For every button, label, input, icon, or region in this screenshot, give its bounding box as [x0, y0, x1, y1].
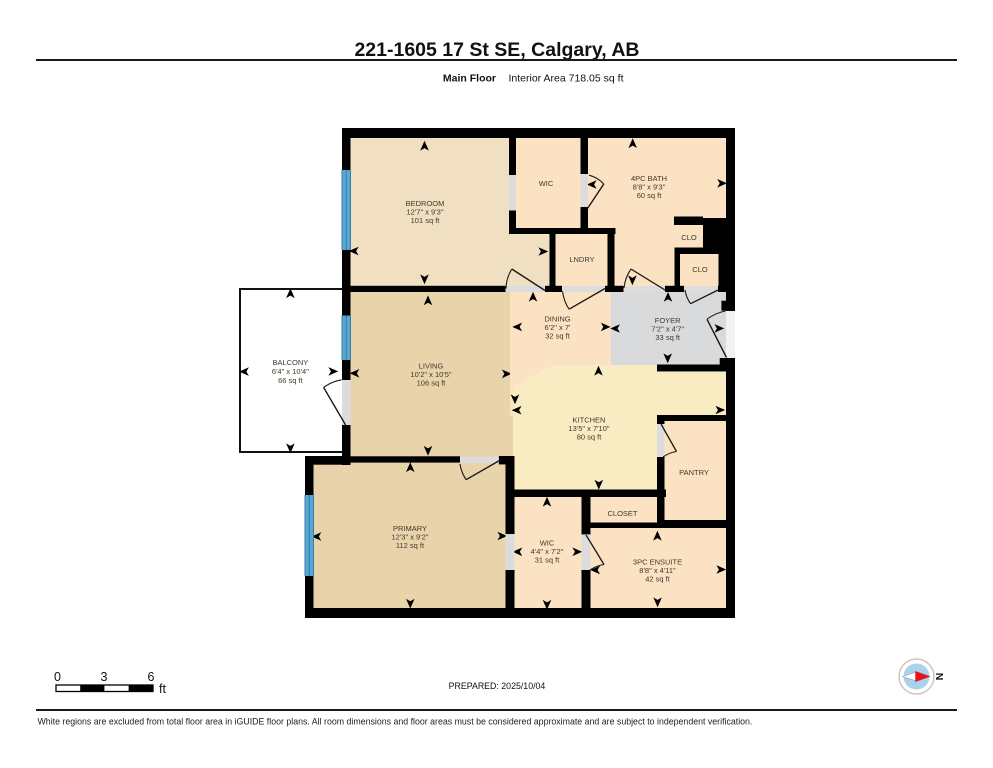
svg-text:33 sq ft: 33 sq ft	[655, 333, 681, 342]
svg-text:6: 6	[148, 670, 155, 684]
svg-text:60 sq ft: 60 sq ft	[637, 191, 663, 200]
svg-text:6'4" x 10'4": 6'4" x 10'4"	[272, 367, 309, 376]
svg-text:White regions are excluded fro: White regions are excluded from total fl…	[38, 717, 753, 727]
svg-text:CLO: CLO	[681, 233, 697, 242]
svg-text:32 sq ft: 32 sq ft	[545, 332, 571, 341]
svg-text:80 sq ft: 80 sq ft	[577, 433, 603, 442]
svg-text:3: 3	[101, 670, 108, 684]
svg-text:BALCONY: BALCONY	[272, 358, 308, 367]
svg-text:PREPARED: 2025/10/04: PREPARED: 2025/10/04	[449, 681, 546, 691]
svg-text:31 sq ft: 31 sq ft	[535, 556, 561, 565]
svg-text:CLO: CLO	[692, 265, 708, 274]
svg-text:221-1605 17 St SE, Calgary, AB: 221-1605 17 St SE, Calgary, AB	[354, 39, 639, 61]
svg-text:Interior Area 718.05 sq ft: Interior Area 718.05 sq ft	[509, 73, 624, 85]
svg-text:106 sq ft: 106 sq ft	[417, 379, 447, 388]
svg-text:WIC: WIC	[539, 179, 554, 188]
svg-text:ft: ft	[159, 682, 166, 696]
svg-text:66 sq ft: 66 sq ft	[278, 376, 304, 385]
svg-text:0: 0	[54, 670, 61, 684]
svg-text:42 sq ft: 42 sq ft	[645, 575, 671, 584]
svg-text:112 sq ft: 112 sq ft	[396, 541, 425, 550]
svg-text:LNDRY: LNDRY	[569, 255, 594, 264]
svg-text:101 sq ft: 101 sq ft	[411, 216, 441, 225]
svg-text:N: N	[933, 673, 945, 681]
svg-text:PANTRY: PANTRY	[679, 468, 709, 477]
svg-text:Main Floor: Main Floor	[443, 73, 496, 85]
svg-text:CLOSET: CLOSET	[607, 509, 637, 518]
